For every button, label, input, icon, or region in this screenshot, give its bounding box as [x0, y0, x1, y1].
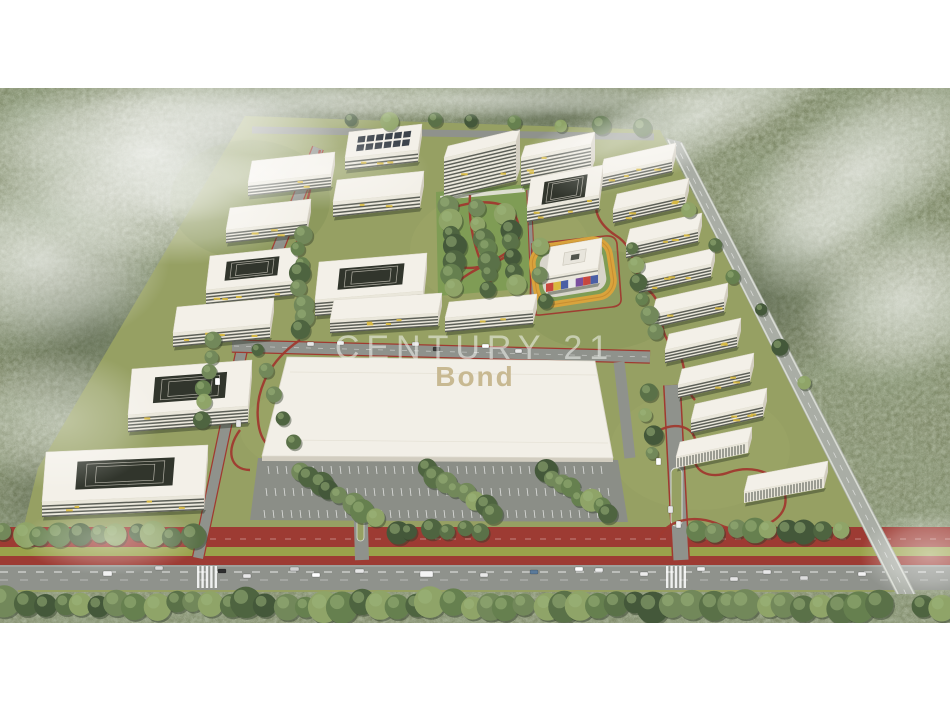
tree: [34, 594, 57, 617]
tree: [266, 386, 282, 402]
car: [482, 344, 489, 348]
car: [307, 342, 314, 346]
architectural-render-image: CENTURY 21 Bond: [0, 0, 950, 713]
building-kinder: [546, 238, 602, 296]
tree: [457, 520, 473, 536]
tree: [532, 238, 549, 255]
tree: [482, 504, 502, 524]
car: [668, 506, 673, 513]
car: [420, 571, 433, 577]
tree: [626, 242, 638, 254]
tree: [504, 248, 521, 265]
car: [800, 576, 808, 580]
tree: [708, 238, 722, 252]
car: [595, 568, 603, 572]
tree: [681, 202, 696, 217]
tree: [598, 504, 617, 523]
car: [515, 349, 522, 353]
car: [763, 570, 771, 574]
car: [730, 577, 738, 581]
tree: [646, 447, 658, 459]
tree: [401, 524, 417, 540]
tree: [502, 233, 519, 250]
tree: [771, 339, 788, 356]
tree: [512, 593, 534, 615]
car: [676, 521, 681, 528]
tree: [628, 257, 644, 273]
tree: [865, 590, 894, 619]
car: [236, 420, 241, 427]
tree: [471, 523, 489, 541]
car: [640, 572, 648, 576]
tree: [725, 270, 740, 285]
tree: [366, 508, 384, 526]
car: [412, 342, 419, 346]
tree: [193, 411, 211, 429]
tree: [121, 593, 148, 620]
tree: [640, 306, 659, 325]
tree: [647, 324, 663, 340]
car: [290, 567, 299, 571]
fog-patch: [20, 505, 200, 575]
car: [243, 574, 251, 578]
tree: [439, 524, 455, 540]
car: [858, 572, 866, 576]
tree: [276, 411, 290, 425]
tree: [204, 350, 218, 364]
tree: [532, 267, 548, 283]
tree: [468, 199, 486, 217]
tree: [205, 332, 222, 349]
tree: [259, 363, 274, 378]
car: [433, 347, 440, 351]
tree: [479, 281, 496, 298]
tree: [251, 344, 263, 356]
tree: [290, 280, 307, 297]
tree: [833, 522, 850, 539]
tree: [198, 591, 224, 617]
building-slab: [330, 293, 442, 337]
tree: [630, 274, 648, 292]
tree: [813, 521, 832, 540]
tree: [797, 376, 811, 390]
car: [480, 573, 488, 577]
tree: [755, 303, 767, 315]
tree: [421, 519, 442, 540]
tree: [253, 593, 277, 617]
car: [355, 569, 364, 573]
tree: [202, 364, 217, 379]
car: [215, 378, 220, 385]
aerial-render-scene: [0, 0, 950, 713]
big-building: [262, 357, 613, 462]
tree: [538, 293, 553, 308]
car: [530, 570, 538, 574]
tree: [481, 266, 497, 282]
tree: [644, 425, 664, 445]
car: [575, 567, 583, 571]
car: [656, 458, 661, 465]
tree: [506, 274, 526, 294]
car: [697, 567, 705, 571]
car: [312, 573, 320, 577]
fog-patch: [210, 130, 430, 210]
tree: [286, 434, 301, 449]
tree: [759, 521, 777, 539]
car: [337, 341, 344, 345]
tree: [640, 383, 658, 401]
tree: [705, 523, 725, 543]
tree: [445, 279, 463, 297]
tree: [686, 520, 707, 541]
tree: [291, 320, 310, 339]
tree: [791, 520, 816, 545]
tree: [730, 589, 760, 619]
tree: [291, 242, 305, 256]
car: [218, 569, 226, 573]
tree: [196, 394, 211, 409]
tree: [635, 292, 648, 305]
tree: [638, 408, 652, 422]
